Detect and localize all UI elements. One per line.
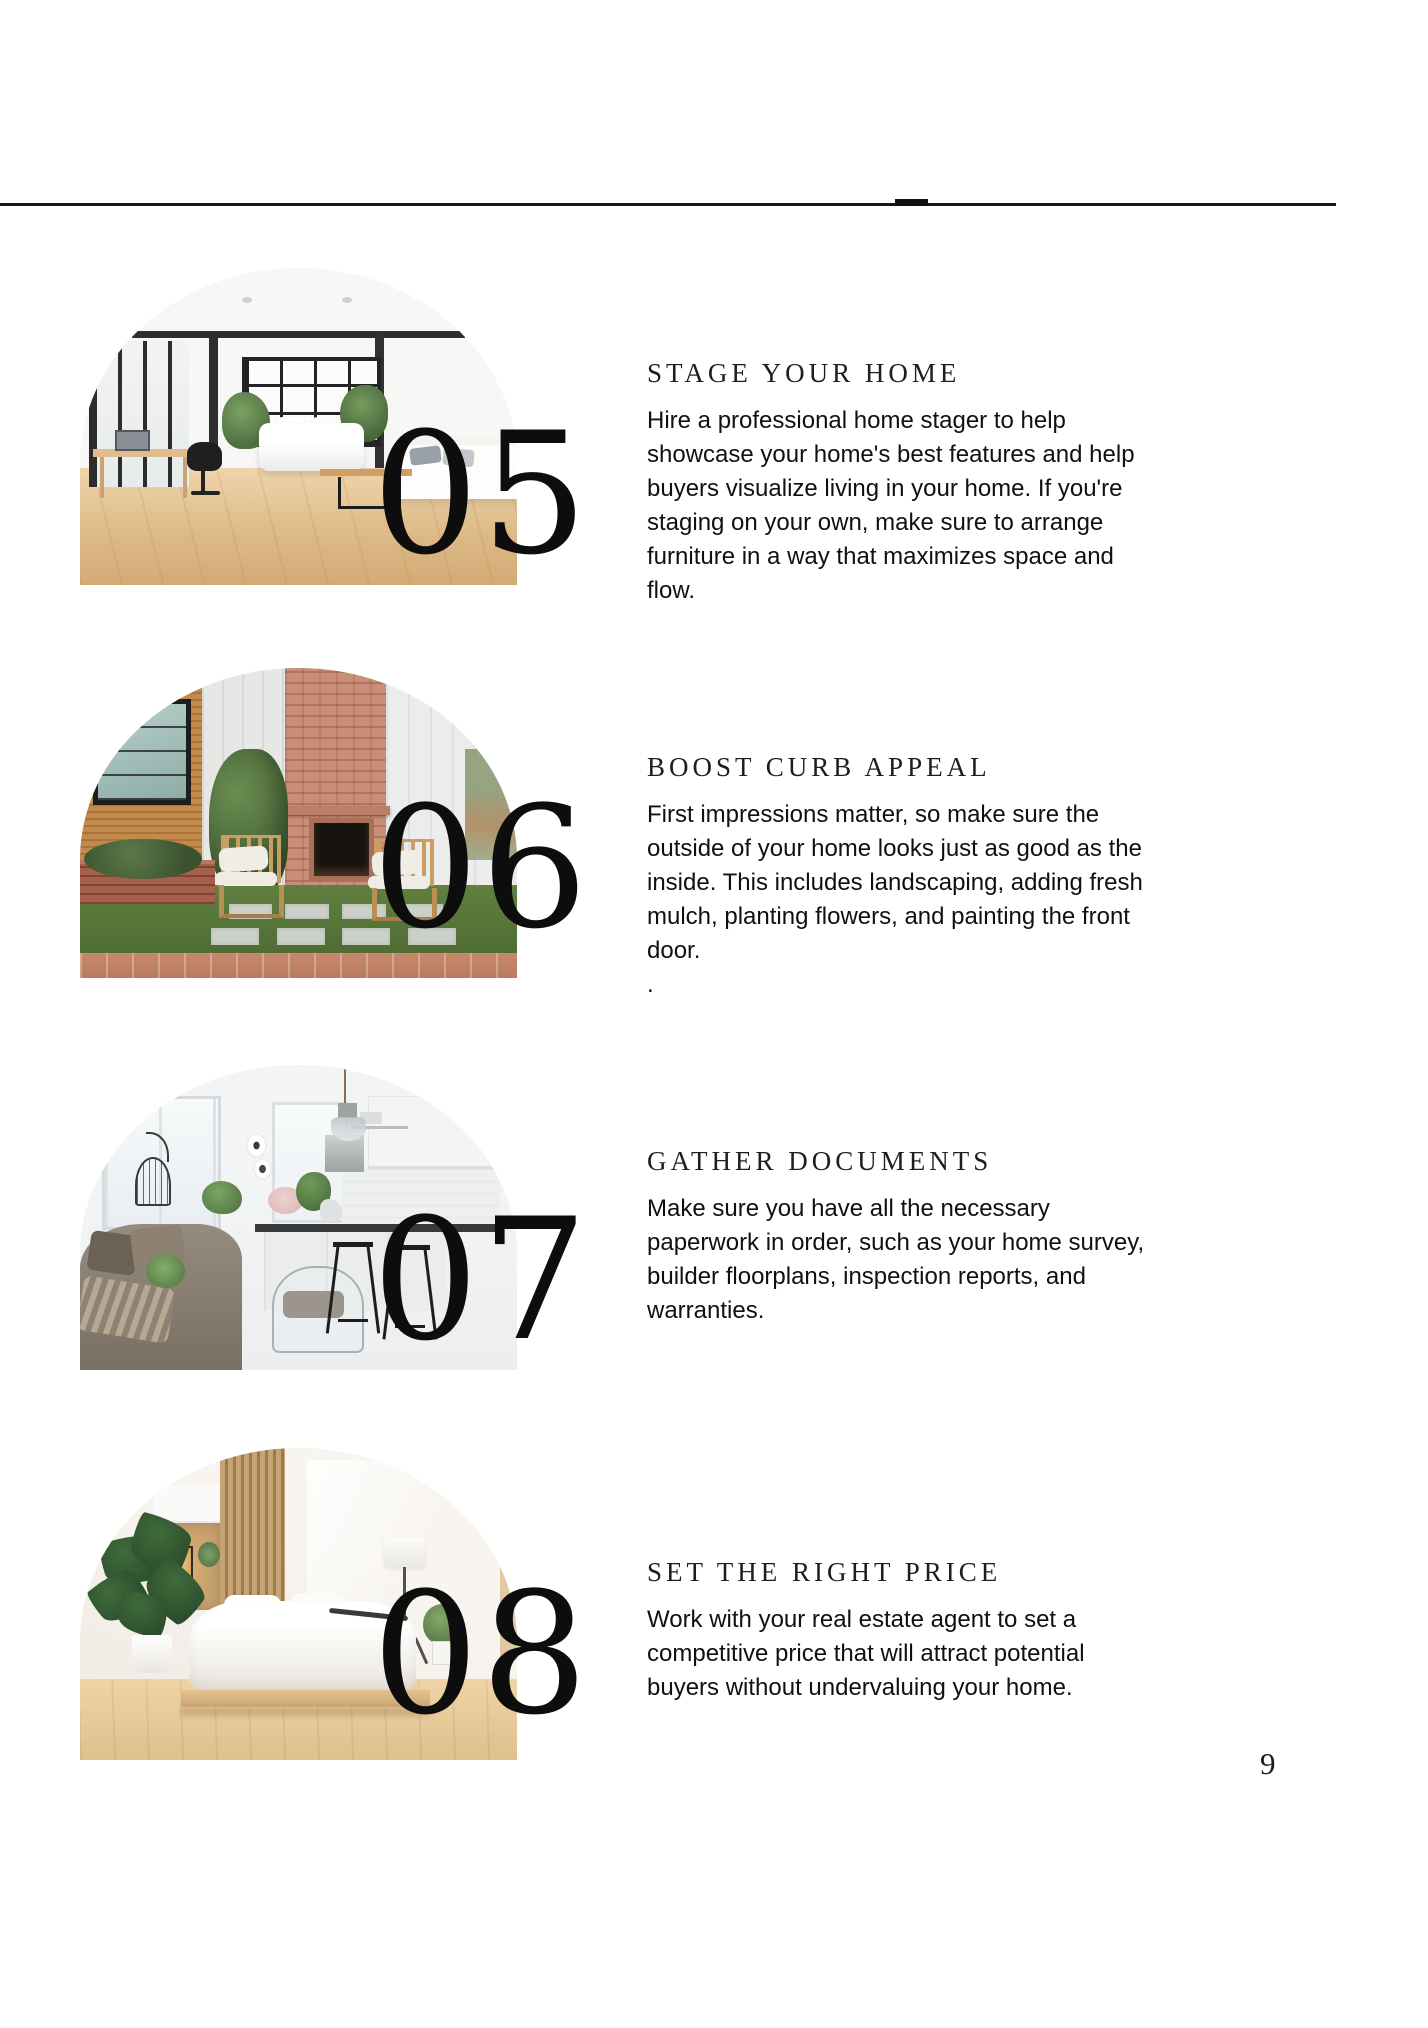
section-stage-your-home: 05 STAGE YOUR HOME Hire a professional h… bbox=[0, 268, 1428, 668]
office-chair bbox=[187, 442, 222, 471]
section-boost-curb-appeal: 06 BOOST CURB APPEAL First impressions m… bbox=[0, 668, 1428, 1068]
chair-legs bbox=[219, 885, 284, 919]
tall-window bbox=[89, 341, 189, 487]
monitor bbox=[115, 430, 150, 451]
section-text: STAGE YOUR HOME Hire a professional home… bbox=[647, 356, 1227, 608]
white-cabinet bbox=[154, 1485, 220, 1522]
section-number: 06 bbox=[372, 784, 590, 952]
section-title: BOOST CURB APPEAL bbox=[647, 750, 1227, 784]
document-page: 05 STAGE YOUR HOME Hire a professional h… bbox=[0, 0, 1428, 2028]
section-gather-documents: 07 GATHER DOCUMENTS Make sure you have a… bbox=[0, 1065, 1428, 1465]
fireplace-opening bbox=[309, 818, 374, 881]
section-text: SET THE RIGHT PRICE Work with your real … bbox=[647, 1555, 1227, 1705]
page-number: 9 bbox=[1260, 1746, 1276, 1782]
section-number: 05 bbox=[372, 410, 590, 578]
section-body: Hire a professional home stager to help … bbox=[647, 404, 1227, 608]
bar-stool bbox=[333, 1242, 372, 1334]
bouquet bbox=[146, 1254, 185, 1288]
section-text: BOOST CURB APPEAL First impressions matt… bbox=[647, 750, 1227, 1002]
plant bbox=[202, 1181, 241, 1215]
section-title: STAGE YOUR HOME bbox=[647, 356, 1227, 390]
wall-plate bbox=[248, 1135, 265, 1156]
section-number: 07 bbox=[372, 1196, 590, 1364]
paver bbox=[277, 928, 325, 945]
bed bbox=[259, 423, 364, 471]
paver bbox=[211, 928, 259, 945]
top-divider-rule bbox=[0, 203, 1336, 206]
white-planter bbox=[132, 1635, 171, 1672]
section-number: 08 bbox=[372, 1570, 590, 1738]
pendant-cord bbox=[344, 1065, 346, 1105]
divider-dash bbox=[895, 199, 928, 206]
wall-plate bbox=[255, 1160, 270, 1178]
chair-post bbox=[201, 471, 205, 493]
section-body: Make sure you have all the necessary pap… bbox=[647, 1192, 1227, 1328]
chair-base bbox=[191, 491, 219, 495]
house-window bbox=[93, 699, 190, 805]
stool-footrest bbox=[338, 1319, 368, 1322]
ceiling-light bbox=[342, 297, 352, 303]
section-title: GATHER DOCUMENTS bbox=[647, 1144, 1227, 1178]
desk-leg bbox=[100, 457, 104, 498]
shrub bbox=[84, 839, 202, 879]
section-text: GATHER DOCUMENTS Make sure you have all … bbox=[647, 1144, 1227, 1328]
section-body: First impressions matter, so make sure t… bbox=[647, 798, 1227, 1002]
ceiling-light bbox=[242, 297, 252, 303]
paver bbox=[285, 904, 329, 920]
section-body: Work with your real estate agent to set … bbox=[647, 1603, 1227, 1705]
shelf-plant bbox=[198, 1542, 220, 1567]
upper-cabinets bbox=[368, 1096, 499, 1169]
steel-beam bbox=[132, 331, 464, 338]
section-set-the-right-price: 08 SET THE RIGHT PRICE Work with your re… bbox=[0, 1448, 1428, 1848]
patio-chair bbox=[215, 835, 281, 916]
section-title: SET THE RIGHT PRICE bbox=[647, 1555, 1227, 1589]
chair-cushion bbox=[219, 846, 269, 873]
